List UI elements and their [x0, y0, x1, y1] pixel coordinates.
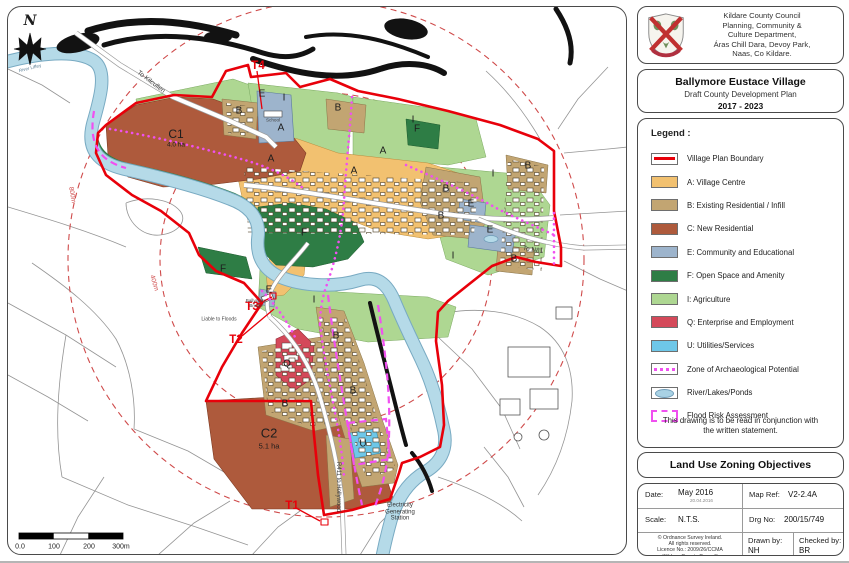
mapref-value: V2-2.4A [788, 490, 817, 499]
archaeo-swatch [651, 363, 678, 375]
date-cell: Date: May 2016 20.04.2016 [638, 484, 742, 508]
zone-label-i: I [452, 251, 455, 262]
zone-label-i: I [283, 93, 286, 104]
legend-item-archaeological: Zone of Archaeological Potential [651, 358, 843, 381]
map-title: Ballymore Eustace Village [638, 76, 843, 88]
scale-bar [19, 533, 123, 539]
zone-label-b: B [350, 386, 357, 397]
road-label-r411: R411 to Hollywood [335, 462, 341, 512]
date-label: Date: [645, 490, 663, 499]
copyright-cell: © Ordnance Survey Ireland. All rights re… [638, 532, 742, 556]
compass-rose [14, 33, 46, 65]
river-lens [655, 389, 674, 398]
drgno-cell: Drg No: 200/15/749 [742, 508, 844, 532]
council-line: Áras Chill Dara, Devoy Park, [687, 40, 837, 50]
date-value: May 2016 [678, 488, 713, 497]
zone-label-a: A [380, 146, 387, 157]
checkedby-cell: Checked by: BR [793, 532, 844, 556]
drgno-label: Drg No: [749, 515, 775, 524]
zone-label-i: I [412, 115, 415, 126]
pond [484, 236, 498, 243]
legend-item-enterprise: Q: Enterprise and Employment [651, 311, 843, 334]
plan-years: 2017 - 2023 [638, 101, 843, 111]
boundary-line [654, 157, 675, 160]
marker-t2: T2 [229, 334, 242, 346]
drgno-value: 200/15/749 [784, 515, 824, 524]
zone-label-i: I [492, 169, 495, 180]
marker-t1: T1 [285, 500, 298, 512]
legend-item-river: River/Lakes/Ponds [651, 381, 843, 404]
legend-heading: Legend : [651, 128, 843, 139]
ballymore-bridge-label: Ballymore Bridge [246, 298, 266, 308]
archaeo-dots [654, 368, 675, 371]
drawing-note: This drawing is to be read in conjunctio… [638, 416, 843, 436]
works-buildings [500, 307, 572, 441]
color-swatch [651, 293, 678, 305]
zone-label-f: F [220, 264, 226, 275]
scalebar-100: 100 [48, 544, 60, 551]
zone-label-f: F [414, 124, 420, 135]
map-subtitle: Draft County Development Plan [638, 90, 843, 99]
legend-item-existing-residential: B: Existing Residential / Infill [651, 194, 843, 217]
council-header-box: Kildare County Council Planning, Communi… [637, 6, 844, 64]
scalebar-0: 0.0 [15, 544, 25, 551]
scale-cell: Scale: N.T.S. [638, 508, 742, 532]
zone-label-e: E [487, 225, 494, 236]
mapref-label: Map Ref: [749, 490, 780, 499]
compass-n-label: N [24, 13, 37, 29]
zone-label-e: E [266, 285, 273, 296]
liable-to-floods-label: Liable to Floods [201, 318, 236, 323]
zone-label-b: B [333, 331, 340, 342]
scalebar-300: 300m [112, 544, 130, 551]
school-label: School [266, 118, 280, 123]
zone-label-c2: C2 [261, 426, 278, 441]
zone-label-b: B [438, 211, 445, 222]
council-line: Planning, Community & [687, 21, 837, 31]
scalebar-200: 200 [83, 544, 95, 551]
checkedby-value: BR [799, 546, 810, 555]
scale-value: N.T.S. [678, 515, 700, 524]
scale-label: Scale: [645, 515, 666, 524]
legend-item-village-centre: A: Village Centre [651, 170, 843, 193]
drawnby-value: NH [748, 546, 760, 555]
drawing-sheet: N C1 4.0 ha C2 5.1 ha A A A A B B B B B … [0, 0, 849, 563]
map-drawing [8, 7, 627, 555]
council-line: Kildare County Council [687, 11, 837, 21]
zone-area-c2: 5.1 ha [259, 442, 280, 451]
legend-item-community-educational: E: Community and Educational [651, 241, 843, 264]
color-swatch [651, 246, 678, 258]
legend-box: Legend : Village Plan Boundary A: Villag… [637, 118, 844, 448]
zone-label-a: A [351, 166, 358, 177]
council-line: Naas, Co Kildare. [687, 49, 837, 59]
zone-label-c1: C1 [168, 127, 183, 141]
color-swatch [651, 199, 678, 211]
zone-label-e: E [468, 199, 475, 210]
mapref-cell: Map Ref: V2-2.4A [742, 484, 844, 508]
legend-item-boundary: Village Plan Boundary [651, 147, 843, 170]
zone-label-a: A [268, 154, 275, 165]
river-swatch [651, 387, 678, 399]
color-swatch [651, 316, 678, 328]
school-building [264, 111, 282, 117]
zone-label-a: A [278, 123, 285, 134]
legend-item-new-residential: C: New Residential [651, 217, 843, 240]
zone-label-b: B [282, 399, 289, 410]
zone-label-b: B [525, 161, 532, 172]
council-address: Kildare County Council Planning, Communi… [687, 11, 843, 59]
drawnby-label: Drawn by: [748, 536, 782, 545]
color-swatch [651, 223, 678, 235]
legend-item-agriculture: I: Agriculture [651, 287, 843, 310]
tree-blobs [54, 15, 429, 57]
color-swatch [651, 340, 678, 352]
zone-label-u: U [359, 439, 366, 450]
zone-area-c1: 4.0 ha [167, 142, 185, 149]
color-swatch [651, 270, 678, 282]
info-table: Date: May 2016 20.04.2016 Map Ref: V2-2.… [637, 483, 844, 556]
zone-label-q: Q [283, 359, 291, 370]
marker-t4: T4 [251, 60, 264, 72]
kildare-crest [645, 12, 687, 58]
boundary-swatch [651, 153, 678, 165]
zone-label-i: I [313, 295, 316, 306]
zoning-objectives-title: Land Use Zoning Objectives [637, 452, 844, 478]
council-line: Culture Department, [687, 30, 837, 40]
checkedby-label: Checked by: [799, 536, 841, 545]
map-title-box: Ballymore Eustace Village Draft County D… [637, 69, 844, 113]
color-swatch [651, 176, 678, 188]
zone-label-e: E [259, 89, 266, 100]
zone-label-b: B [335, 103, 342, 114]
zone-label-f: F [301, 228, 307, 239]
legend-item-open-space: F: Open Space and Amenity [651, 264, 843, 287]
electricity-station-label: Electricity Generating Station [385, 502, 415, 522]
zone-label-b: B [443, 184, 450, 195]
date-small: 20.04.2016 [690, 498, 713, 503]
drawnby-cell: Drawn by: NH [742, 532, 793, 556]
map-area: N C1 4.0 ha C2 5.1 ha A A A A B B B B B … [7, 6, 627, 555]
zone-label-b: B [511, 254, 518, 265]
legend-item-utilities: U: Utilities/Services [651, 334, 843, 357]
zone-label-b: B [236, 106, 243, 117]
